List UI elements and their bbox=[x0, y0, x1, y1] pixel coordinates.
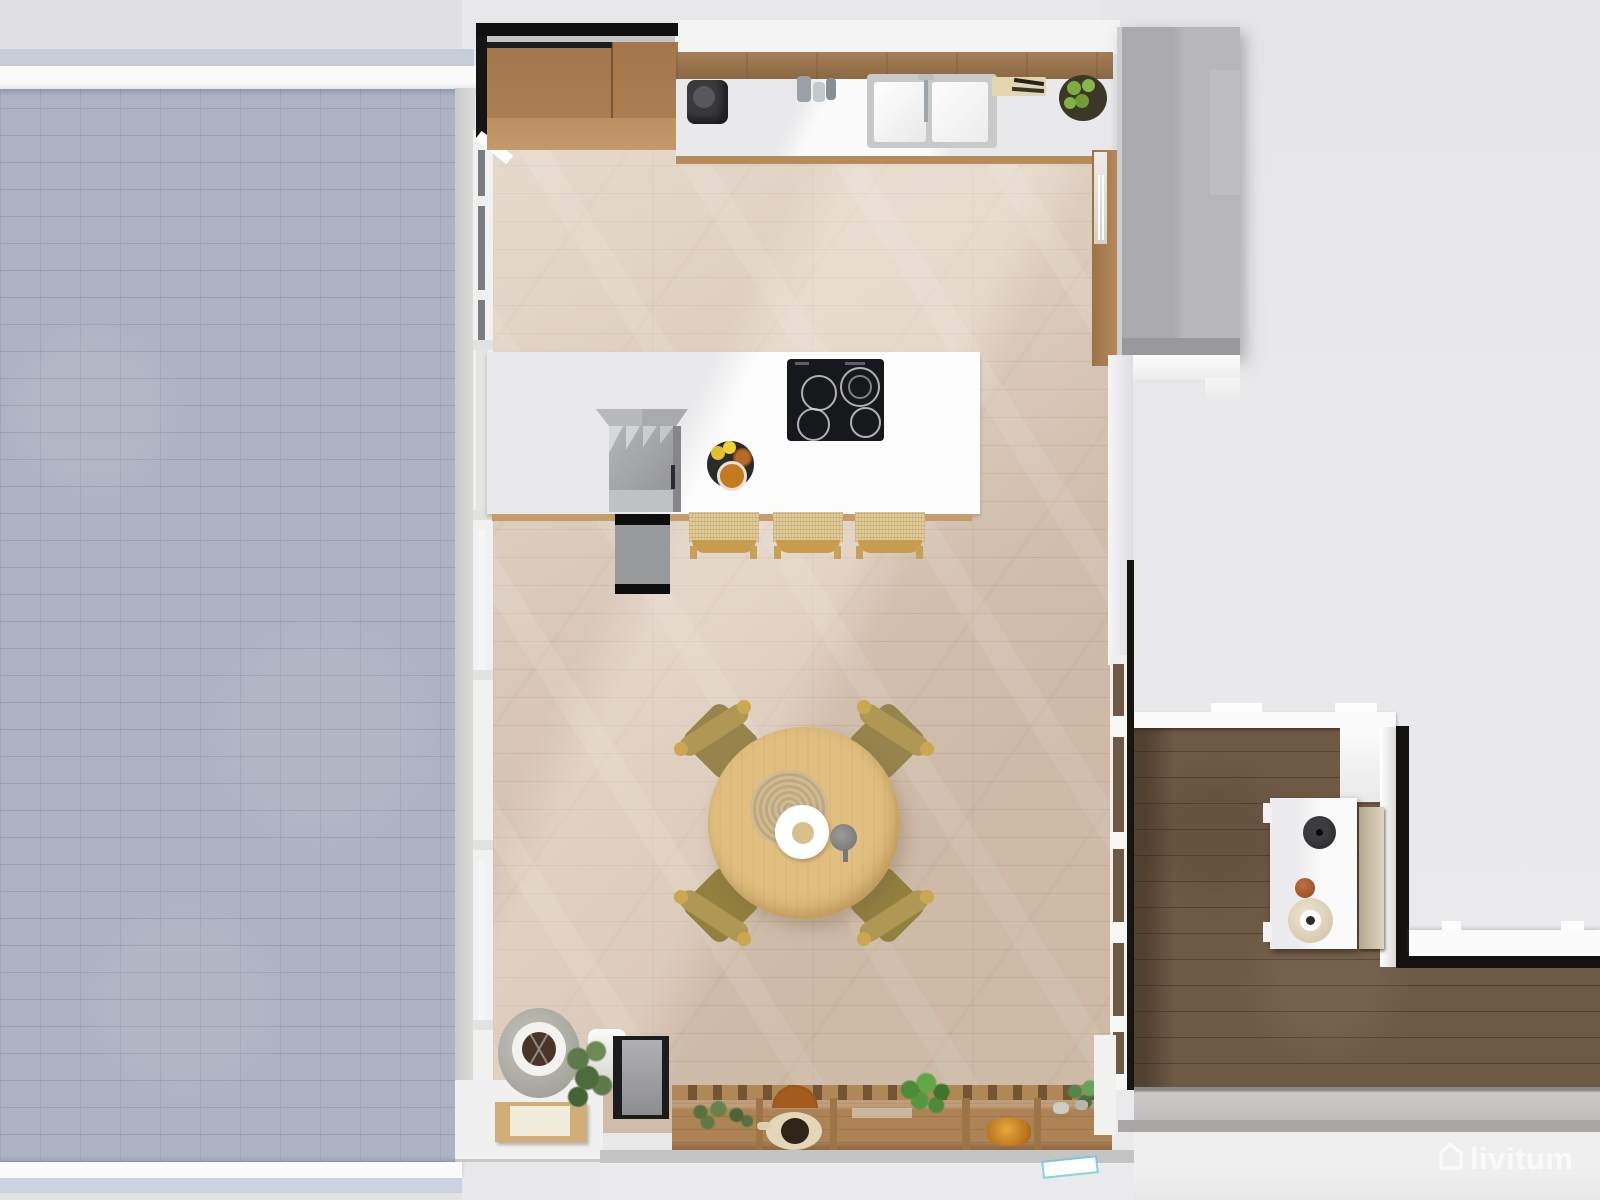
svg-text:livitum: livitum bbox=[1470, 1141, 1573, 1176]
